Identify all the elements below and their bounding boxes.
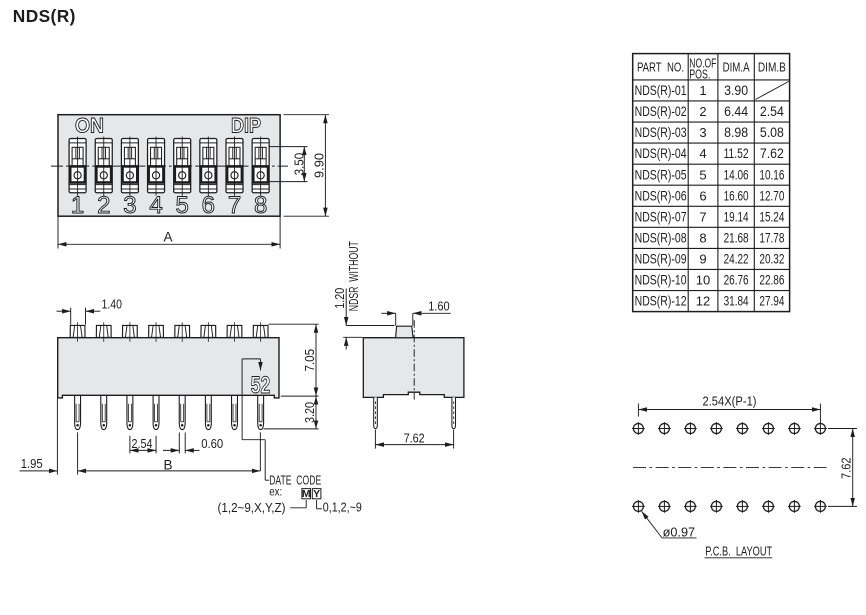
svg-text:2.54: 2.54 (132, 436, 153, 451)
svg-text:7: 7 (699, 209, 706, 224)
svg-text:14.06: 14.06 (724, 167, 749, 182)
svg-text:2: 2 (699, 104, 706, 119)
svg-text:7.62: 7.62 (760, 146, 784, 161)
svg-text:NDS(R)-02: NDS(R)-02 (635, 104, 687, 119)
svg-text:9: 9 (699, 252, 706, 267)
svg-text:PART NO.: PART NO. (637, 59, 684, 74)
svg-text:(1,2~9,X,Y,Z): (1,2~9,X,Y,Z) (218, 501, 286, 515)
svg-text:NDS(R): NDS(R) (13, 6, 76, 26)
svg-text:NDS(R)-12: NDS(R)-12 (635, 294, 687, 309)
svg-text:0.60: 0.60 (201, 436, 223, 451)
svg-text:9.90: 9.90 (311, 153, 326, 178)
svg-text:A: A (163, 230, 172, 245)
svg-text:DIM.B: DIM.B (758, 59, 786, 74)
svg-text:4: 4 (699, 146, 706, 161)
svg-text:0,1,2,~9: 0,1,2,~9 (323, 500, 362, 514)
svg-text:20.32: 20.32 (759, 252, 784, 267)
svg-text:3.50: 3.50 (291, 153, 306, 176)
svg-text:POS.: POS. (689, 67, 710, 81)
svg-text:3: 3 (699, 125, 706, 140)
svg-text:1.60: 1.60 (428, 298, 450, 313)
svg-text:31.84: 31.84 (724, 294, 749, 309)
svg-text:1.95: 1.95 (21, 456, 43, 471)
svg-text:6.44: 6.44 (724, 104, 748, 119)
svg-text:Y: Y (313, 488, 320, 500)
svg-text:7.62: 7.62 (839, 457, 854, 479)
svg-text:1: 1 (71, 192, 84, 219)
svg-text:17.78: 17.78 (759, 230, 784, 245)
svg-text:3.20: 3.20 (302, 402, 317, 423)
svg-text:NDS(R)-01: NDS(R)-01 (635, 83, 687, 98)
svg-text:26.76: 26.76 (724, 273, 749, 288)
svg-text:6: 6 (699, 188, 706, 203)
svg-text:21.68: 21.68 (724, 230, 749, 245)
svg-text:22.86: 22.86 (759, 273, 784, 288)
svg-text:2.54X(P-1): 2.54X(P-1) (703, 395, 757, 409)
svg-text:P.C.B. LAYOUT: P.C.B. LAYOUT (705, 543, 772, 558)
svg-text:ex:: ex: (269, 484, 282, 498)
svg-text:1: 1 (699, 83, 706, 98)
svg-text:12.70: 12.70 (759, 188, 784, 203)
svg-text:ON: ON (75, 115, 104, 138)
svg-text:27.94: 27.94 (759, 294, 784, 309)
svg-text:B: B (163, 457, 172, 472)
svg-text:NDS(R)-06: NDS(R)-06 (635, 188, 687, 203)
svg-text:NDS(R)-10: NDS(R)-10 (635, 273, 687, 288)
svg-text:19.14: 19.14 (724, 209, 749, 224)
svg-text:11.52: 11.52 (724, 146, 749, 161)
svg-text:1.20: 1.20 (333, 288, 347, 309)
svg-text:4: 4 (149, 192, 162, 219)
svg-text:8: 8 (254, 192, 267, 219)
svg-text:ø0.97: ø0.97 (663, 524, 696, 539)
svg-text:NDSR WITHOUT: NDSR WITHOUT (347, 241, 361, 311)
svg-text:3.90: 3.90 (724, 83, 748, 98)
svg-text:NDS(R)-08: NDS(R)-08 (635, 230, 687, 245)
svg-text:2.54: 2.54 (760, 104, 784, 119)
svg-text:M: M (302, 488, 311, 500)
svg-text:DIM.A: DIM.A (723, 59, 750, 74)
svg-text:24.22: 24.22 (724, 252, 749, 267)
svg-text:7.05: 7.05 (302, 349, 317, 372)
svg-text:10: 10 (696, 273, 710, 288)
svg-text:NDS(R)-03: NDS(R)-03 (635, 125, 687, 140)
svg-text:6: 6 (202, 192, 215, 219)
svg-text:3: 3 (123, 192, 136, 219)
svg-text:NDS(R)-05: NDS(R)-05 (635, 167, 687, 182)
svg-text:8: 8 (699, 230, 706, 245)
svg-text:8.98: 8.98 (724, 125, 748, 140)
svg-text:5.08: 5.08 (760, 125, 784, 140)
svg-text:52: 52 (251, 372, 271, 399)
svg-text:NDS(R)-04: NDS(R)-04 (635, 146, 687, 161)
svg-text:16.60: 16.60 (724, 188, 749, 203)
svg-text:NDS(R)-07: NDS(R)-07 (635, 209, 687, 224)
svg-text:DIP: DIP (231, 115, 261, 138)
svg-text:5: 5 (699, 167, 706, 182)
svg-text:1.40: 1.40 (102, 296, 123, 311)
svg-text:12: 12 (696, 294, 710, 309)
svg-text:7: 7 (228, 192, 241, 219)
svg-text:7.62: 7.62 (404, 431, 425, 446)
svg-text:10.16: 10.16 (759, 167, 784, 182)
svg-text:15.24: 15.24 (759, 209, 784, 224)
svg-text:5: 5 (176, 192, 189, 219)
svg-text:2: 2 (97, 192, 110, 219)
svg-text:NDS(R)-09: NDS(R)-09 (635, 252, 687, 267)
